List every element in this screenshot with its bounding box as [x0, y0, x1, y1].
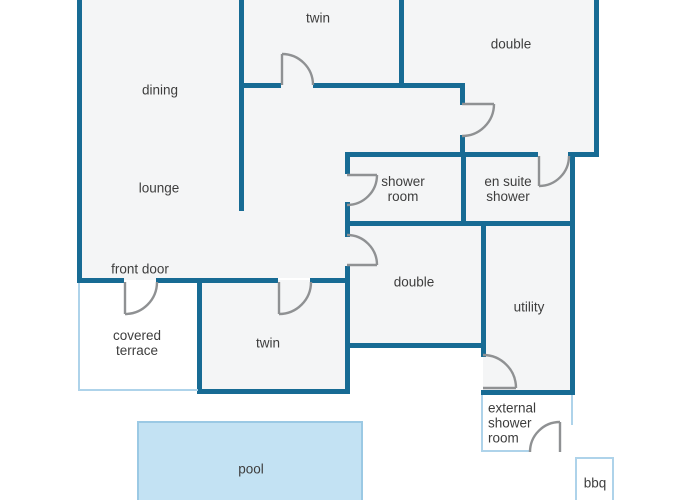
door-utility	[483, 355, 516, 388]
door-swing-arc	[483, 355, 516, 388]
door-double-bottom	[347, 235, 377, 265]
door-swing-arc	[347, 235, 377, 265]
room-label-twin-bottom: twin	[256, 335, 280, 350]
room-label-double-top: double	[491, 36, 532, 51]
doors-layer	[0, 0, 700, 500]
room-label-lounge: lounge	[139, 180, 180, 195]
door-en-suite-shower	[539, 156, 569, 186]
door-twin-bottom	[279, 282, 311, 314]
pool-label: pool	[238, 461, 264, 476]
bbq-label: bbq	[584, 475, 607, 490]
room-label-external-shower-room: external shower room	[488, 400, 558, 445]
room-label-en-suite-shower: en suite shower	[475, 174, 541, 204]
door-twin-top	[282, 54, 313, 85]
room-label-covered-terrace: covered terrace	[101, 328, 173, 358]
room-label-twin-top: twin	[306, 10, 330, 25]
door-swing-arc	[279, 282, 311, 314]
door-swing-arc	[462, 104, 494, 136]
room-label-utility: utility	[514, 299, 545, 314]
room-label-double-bottom: double	[394, 274, 435, 289]
room-label-shower-room: shower room	[372, 174, 434, 204]
floor-plan: twin double dining lounge shower room en…	[0, 0, 700, 500]
door-swing-arc	[539, 156, 569, 186]
door-double-top	[462, 104, 494, 136]
room-label-dining: dining	[142, 82, 178, 97]
front-door-label: front door	[111, 261, 169, 276]
door-swing-arc	[125, 282, 157, 314]
door-swing-arc	[282, 54, 313, 85]
front-door	[125, 282, 157, 314]
